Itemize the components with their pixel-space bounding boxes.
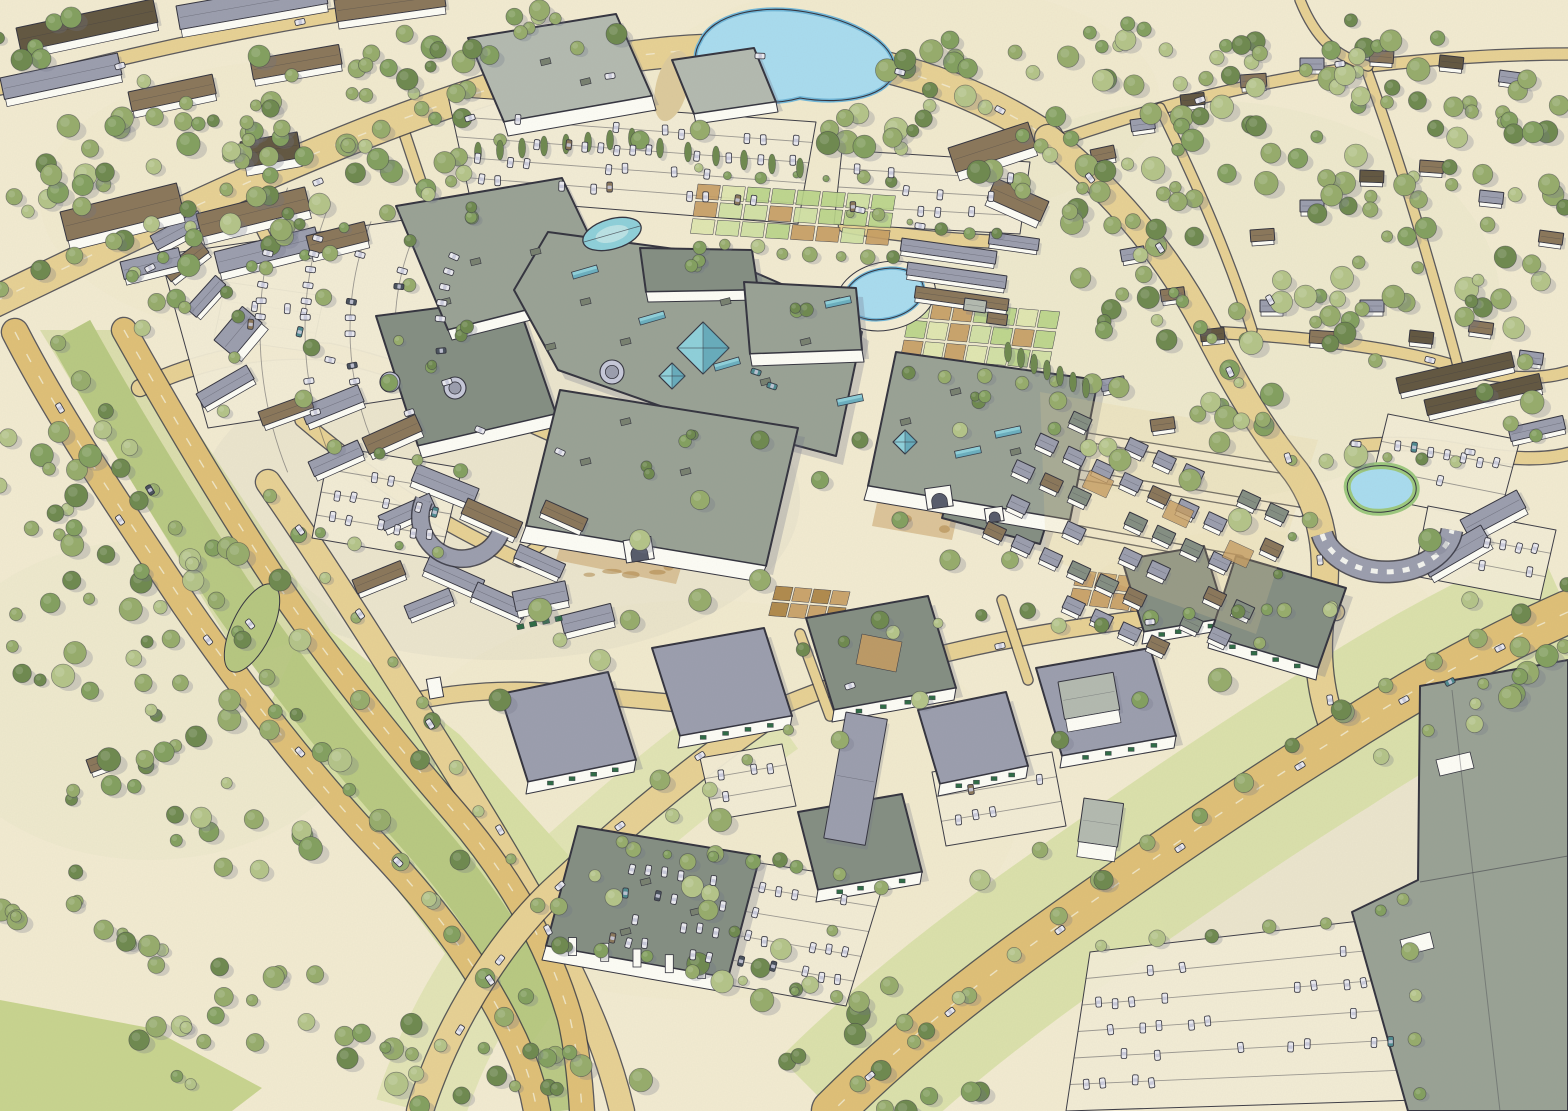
aerial-illustration: Watercolor aerial rendering of a shoppin…	[0, 0, 1568, 1111]
scene-svg	[0, 0, 1568, 1111]
paper-grain	[0, 0, 1568, 1111]
